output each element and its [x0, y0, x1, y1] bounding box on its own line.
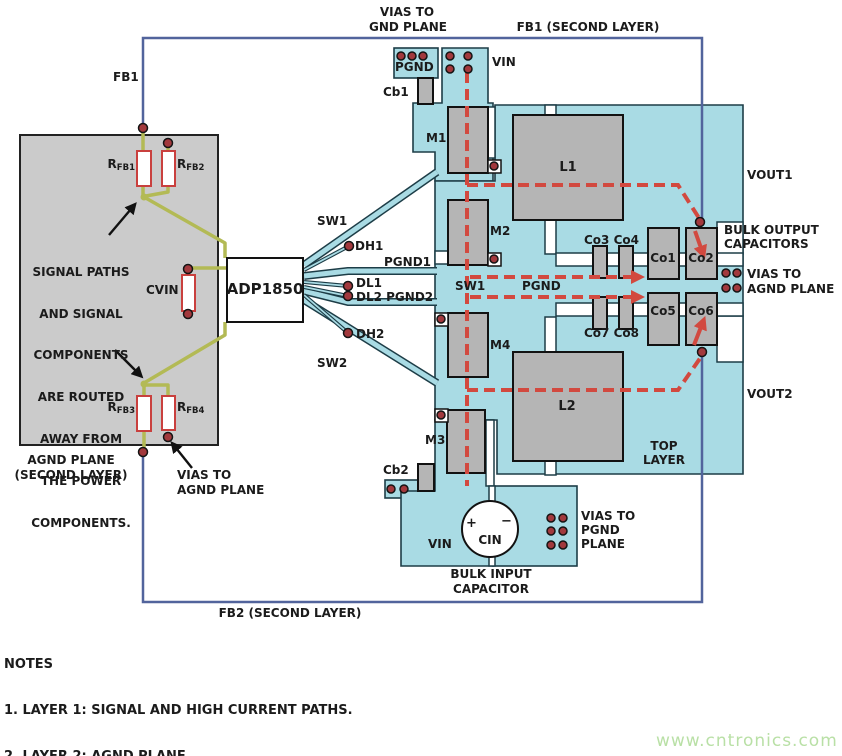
cin-label: CIN	[478, 534, 501, 548]
rfb1-sub: FB1	[117, 163, 135, 173]
bulk-input-label-1: BULK INPUT	[450, 568, 531, 582]
cap-co6	[686, 293, 717, 345]
sw1-node-label: SW1	[455, 280, 485, 294]
co3-co4-label: Co3 Co4	[584, 234, 639, 248]
cap-cb2	[418, 464, 434, 491]
cap-co3	[593, 246, 607, 278]
dh1-pin-label: DH1	[355, 240, 383, 254]
fb1-label: FB1	[113, 71, 139, 85]
fb2-second-layer-label: FB2 (SECOND LAYER)	[219, 607, 362, 621]
fb1-second-layer-label: FB1 (SECOND LAYER)	[517, 21, 660, 35]
cb2-label: Cb2	[383, 464, 409, 478]
resistor-rfb3	[137, 396, 151, 431]
dh2-pin-label: DH2	[356, 328, 384, 342]
rfb4-label: RFB4	[177, 401, 204, 417]
l2-label: L2	[558, 399, 575, 414]
cb1-label: Cb1	[383, 86, 409, 100]
cin-plus-sign: +	[466, 516, 477, 531]
vias-pgnd-label-3: PLANE	[581, 538, 625, 552]
vin-top-label: VIN	[492, 56, 516, 70]
vias-gnd-plane-label-2: GND PLANE	[369, 21, 447, 35]
pgnd1-pin-label: PGND1	[384, 256, 431, 270]
resistor-rfb2	[162, 151, 175, 186]
note-line: 1. LAYER 1: SIGNAL AND HIGH CURRENT PATH…	[4, 703, 553, 719]
m2-label: M2	[490, 225, 510, 239]
co5-label: Co5	[650, 305, 675, 319]
rfb2-sub: FB2	[186, 163, 204, 173]
cin-minus-sign: −	[501, 514, 512, 529]
dl1-pin-label: DL1	[356, 277, 382, 291]
co6-label: Co6	[688, 305, 713, 319]
cap-co7	[593, 297, 607, 329]
resistor-rfb4	[162, 396, 175, 430]
vout2-label: VOUT2	[747, 388, 793, 402]
bulk-output-label-2: CAPACITORS	[724, 238, 809, 252]
m4-label: M4	[490, 339, 510, 353]
vias-agnd-right-label-1: VIAS TO	[747, 268, 801, 282]
note-line: 2. LAYER 2: AGND PLANE.	[4, 749, 553, 756]
trace-junction	[141, 194, 148, 201]
m1-label: M1	[426, 132, 446, 146]
vias-pgnd-label-1: VIAS TO	[581, 510, 635, 524]
signal-routing-note: SIGNAL PATHS AND SIGNAL COMPONENTS ARE R…	[24, 237, 138, 544]
vias-agnd-left-label-2: AGND PLANE	[177, 484, 264, 498]
rfb2-label: RFB2	[177, 158, 204, 174]
capacitor-cvin	[182, 275, 195, 311]
notes-title: NOTES	[4, 657, 553, 673]
vias-gnd-plane-label-1: VIAS TO	[380, 6, 434, 20]
vin-bottom-label: VIN	[428, 538, 452, 552]
sw2-pin-label: SW2	[317, 357, 347, 371]
l1-label: L1	[559, 160, 576, 175]
cap-cb1	[418, 78, 433, 104]
co2-label: Co2	[688, 252, 713, 266]
cap-co5	[648, 293, 679, 345]
cvin-label: CVIN	[146, 284, 179, 298]
bulk-input-label-2: CAPACITOR	[453, 583, 529, 597]
m3-label: M3	[425, 434, 445, 448]
resistor-rfb1	[137, 151, 151, 186]
vias-agnd-right-label-2: AGND PLANE	[747, 283, 834, 297]
pgnd-top-label: PGND	[395, 61, 434, 75]
co7-co8-label: Co7 Co8	[584, 327, 639, 341]
bulk-output-label-1: BULK OUTPUT	[724, 224, 819, 238]
agnd-plane-label-2: (SECOND LAYER)	[15, 469, 128, 483]
trace-junction	[141, 381, 148, 388]
dl2-pgnd2-pin-label: DL2 PGND2	[356, 291, 433, 305]
rfb4-base: R	[177, 400, 186, 414]
notes-section: NOTES 1. LAYER 1: SIGNAL AND HIGH CURREN…	[4, 627, 553, 756]
rfb4-sub: FB4	[186, 406, 204, 416]
top-layer-label-2: LAYER	[643, 454, 685, 468]
top-layer-label-1: TOP	[650, 440, 677, 454]
rfb1-base: R	[108, 157, 117, 171]
agnd-plane-label-1: AGND PLANE	[27, 454, 114, 468]
cap-co4	[619, 246, 633, 278]
vout1-label: VOUT1	[747, 169, 793, 183]
cap-co8	[619, 297, 633, 329]
rfb1-label: RFB1	[101, 158, 135, 174]
co1-label: Co1	[650, 252, 675, 266]
rfb2-base: R	[177, 157, 186, 171]
watermark: www.cntronics.com	[656, 731, 838, 751]
sw1-pin-label: SW1	[317, 215, 347, 229]
pcb-layout-diagram: VIAS TO GND PLANE FB1 (SECOND LAYER) FB1…	[0, 0, 842, 756]
vias-pgnd-label-2: PGND	[581, 524, 620, 538]
adp1850-label: ADP1850	[227, 281, 304, 298]
vias-agnd-left-label-1: VIAS TO	[177, 469, 231, 483]
pgnd-node-label: PGND	[522, 280, 561, 294]
